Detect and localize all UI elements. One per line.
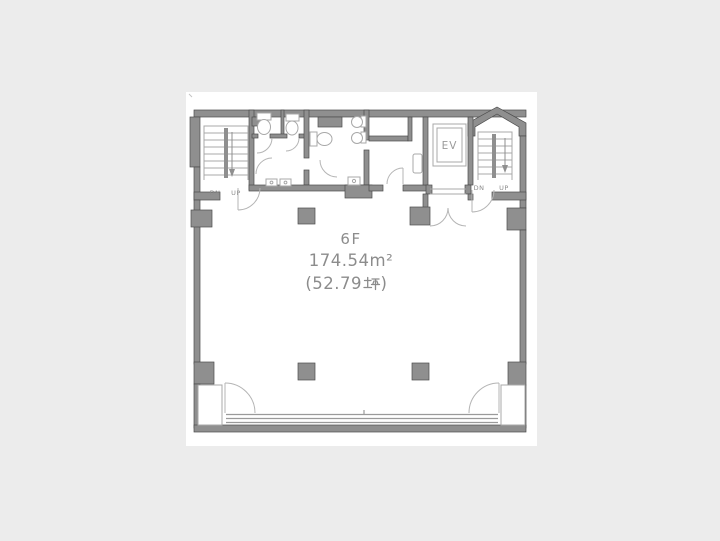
area-sqm-label: 174.54m²	[309, 251, 393, 270]
water-heater-cabinet	[413, 154, 422, 173]
area-tsubo-prefix: (52.79	[305, 274, 362, 293]
door-swing-men-wc	[320, 160, 337, 177]
left-staircase: DN UP	[204, 126, 248, 197]
stair-right-down-label: DN	[474, 184, 485, 192]
stair-stringer	[492, 134, 496, 178]
area-tsubo-label: (52.79 )	[305, 274, 387, 293]
toilet-bowl	[317, 133, 332, 146]
door-swing-main-right	[469, 383, 499, 413]
urinal	[352, 133, 363, 144]
toilet-tank	[310, 132, 317, 146]
elevator: EV	[430, 124, 466, 194]
pillar-left-mid	[191, 210, 212, 227]
wall-stall-divider	[281, 110, 284, 136]
toilet-bowl	[286, 121, 298, 135]
pillars	[298, 207, 430, 380]
door-swing-stair-right	[472, 190, 494, 212]
door-swing-stall-1	[257, 138, 272, 153]
pillar-upper-right	[410, 207, 430, 225]
page-background: DN UP DN UP	[0, 0, 720, 541]
wall-ev-right	[468, 117, 473, 185]
doorway-recess-right	[501, 385, 525, 425]
window-wall	[226, 410, 498, 423]
wall-inner-room-horiz	[369, 136, 408, 141]
pillar-lower-right	[412, 363, 429, 380]
urinal	[352, 117, 363, 128]
toilet-bowl	[258, 120, 271, 135]
toilet-tank	[257, 113, 271, 120]
wall-stall-front-2	[270, 134, 287, 138]
doorway-recess-left	[198, 385, 222, 425]
wall-bottom	[194, 425, 526, 432]
wall-ev-left	[423, 117, 428, 185]
stair-left-down-label: DN	[210, 189, 221, 197]
down-arrow-icon	[502, 165, 508, 173]
elevator-label: EV	[442, 140, 458, 152]
floorplan-svg: DN UP DN UP	[186, 92, 537, 446]
pillar-upper-left	[298, 208, 315, 224]
wall-stair-right-bottom	[492, 192, 526, 200]
floor-label: 6F	[340, 230, 361, 248]
stair-right-up-label: UP	[499, 184, 509, 192]
wall-wc-divider-lower	[304, 170, 309, 185]
wall-room4-bottom-right	[403, 185, 428, 191]
wall-top	[194, 110, 526, 117]
door-swing-hall-double-left	[430, 208, 448, 226]
pipe-duct-block	[318, 117, 342, 127]
door-swing-main-left	[225, 383, 255, 413]
wall-inner-room-vert	[408, 117, 412, 141]
floor-title-block: 6F 174.54m² (52.79 )	[305, 230, 393, 293]
door-swing-hall-double-right	[448, 208, 466, 226]
floorplan-image: DN UP DN UP	[186, 92, 537, 446]
wall-left-upper	[190, 117, 200, 167]
toilet-tank	[286, 114, 299, 121]
down-arrow-icon	[229, 169, 235, 177]
sink-drain	[352, 179, 355, 182]
door-swing-wc-entrance	[256, 158, 272, 174]
area-tsubo-suffix: )	[381, 274, 388, 293]
door-swing-stall-2	[286, 138, 299, 151]
pillar-lower-left	[298, 363, 315, 380]
pillar-left-bottom	[194, 362, 214, 384]
right-staircase: DN UP	[474, 132, 512, 192]
wall-service-notch	[345, 185, 372, 198]
pillar-right-bottom	[508, 362, 526, 385]
wall-men-room-lower	[364, 150, 369, 185]
tsubo-glyph	[364, 278, 380, 290]
wall-right-mid	[520, 230, 526, 364]
sink-drain	[284, 181, 287, 184]
stair-stringer	[224, 128, 228, 178]
stair-left-up-label: UP	[231, 189, 241, 197]
pillar-right-mid	[507, 208, 526, 230]
wall-room4-bottom-left	[369, 185, 383, 191]
scan-artifact	[189, 94, 192, 97]
wall-stall-front-1	[252, 134, 258, 138]
door-swing-utility-room	[387, 168, 403, 184]
wall-wc-divider-upper	[304, 110, 309, 158]
sink-drain	[270, 181, 273, 184]
hall-jamb-left	[423, 194, 428, 208]
